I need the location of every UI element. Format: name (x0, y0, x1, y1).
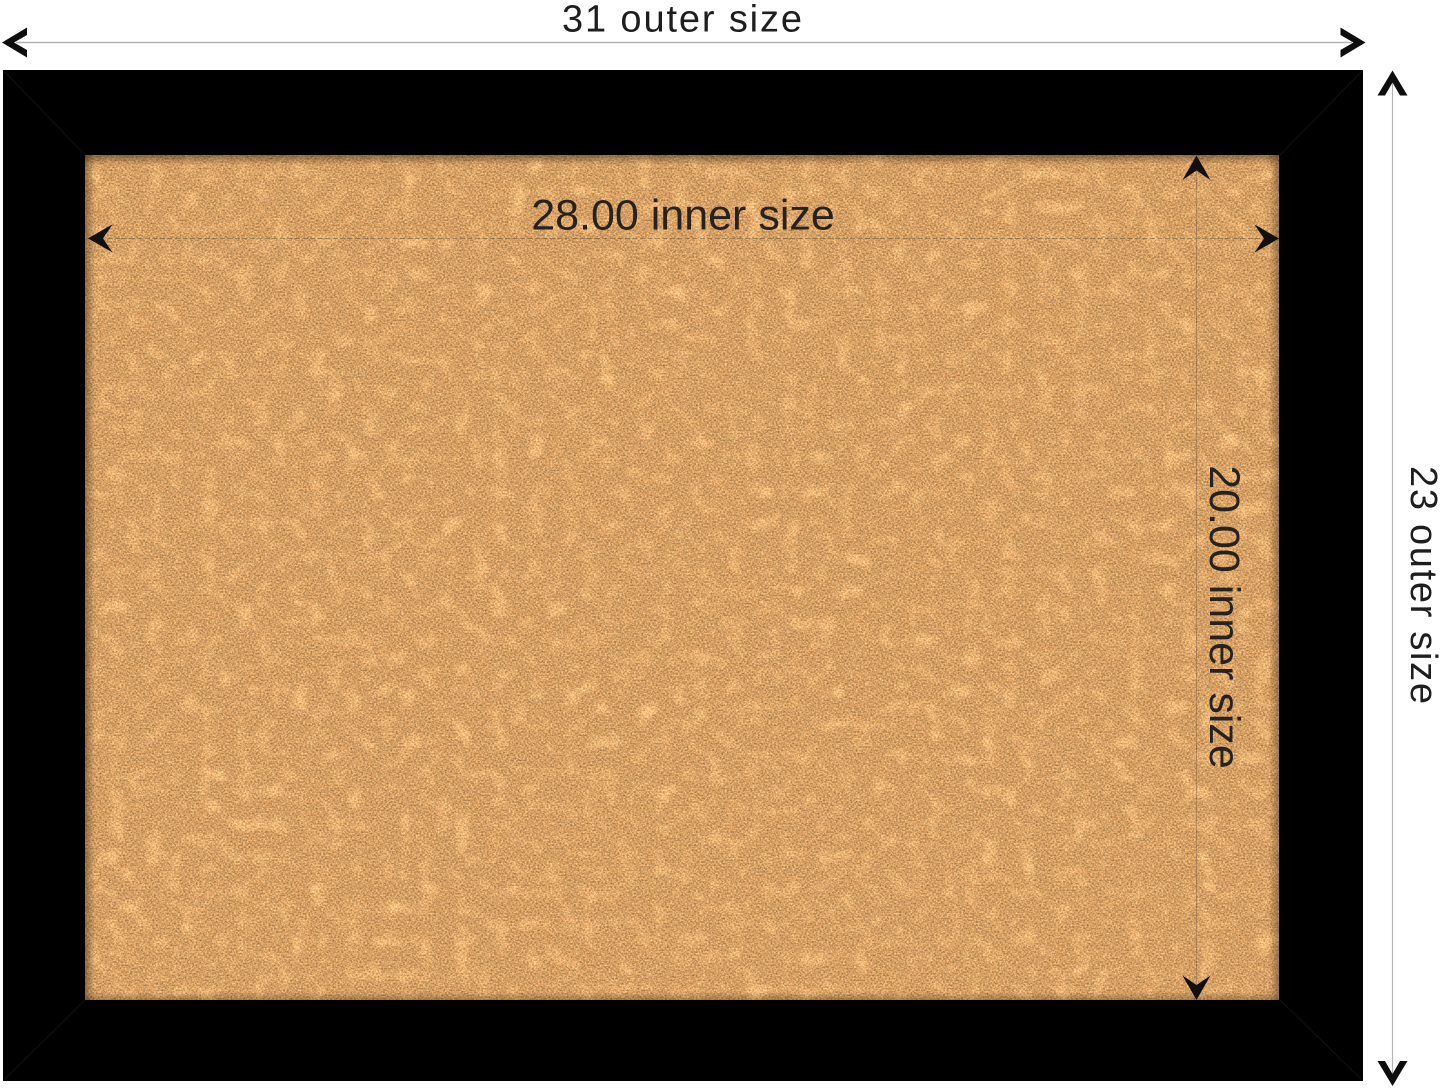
svg-text:23 outer size: 23 outer size (1402, 466, 1444, 704)
svg-text:20.00 inner size: 20.00 inner size (1200, 465, 1248, 769)
svg-text:31 outer size: 31 outer size (562, 0, 802, 41)
svg-text:28.00 inner size: 28.00 inner size (531, 192, 835, 240)
